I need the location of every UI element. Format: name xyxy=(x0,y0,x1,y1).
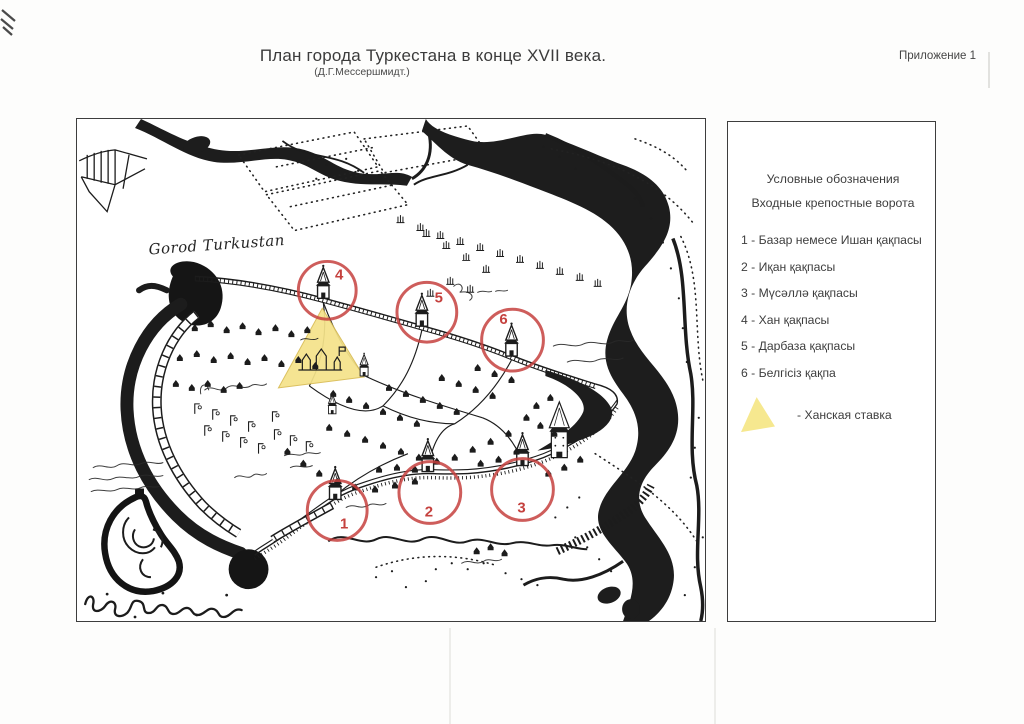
map-handwritten-label: Gorod Turkustan xyxy=(148,231,285,258)
scan-edge-line xyxy=(988,52,990,88)
gate-marker-3: 3 xyxy=(492,459,554,521)
svg-text:6: 6 xyxy=(499,311,507,328)
scan-fold-line xyxy=(449,628,451,724)
minaret-tower xyxy=(549,402,569,458)
historical-map: Gorod Turkustan xyxy=(77,119,705,621)
page-subtitle: (Д.Г.Мессершмидт.) xyxy=(314,66,409,78)
svg-text:3: 3 xyxy=(517,499,525,516)
legend-item-2: 2 - Иқан қақпасы xyxy=(741,258,925,278)
khan-hq-swatch xyxy=(741,397,775,432)
citadel-highlight xyxy=(278,308,364,388)
legend-subheading: Входные крепостные ворота xyxy=(741,196,925,210)
corner-sketch xyxy=(79,150,147,212)
marks-layer xyxy=(195,404,313,454)
river-northwest xyxy=(135,119,468,186)
svg-text:4: 4 xyxy=(335,266,344,283)
legend-item-4: 4 - Хан қақпасы xyxy=(741,311,925,331)
legend-item-5: 5 - Дарбаза қақпасы xyxy=(741,337,925,357)
scan-corner-mark xyxy=(0,8,18,38)
arabic-script xyxy=(85,592,241,619)
legend-panel: Условные обозначения Входные крепостные … xyxy=(727,121,936,622)
legend-item-1: 1 - Базар немесе Ишан қақпасы xyxy=(741,231,925,251)
scan-fold-line xyxy=(714,628,716,724)
legend-item-3: 3 - Мүсәллә қақпасы xyxy=(741,284,925,304)
khan-hq-row: - Ханская ставка xyxy=(741,397,925,432)
legend-items: 1 - Базар немесе Ишан қақпасы2 - Иқан қа… xyxy=(741,231,925,383)
svg-text:5: 5 xyxy=(435,289,443,306)
annex-label: Приложение 1 xyxy=(899,50,976,62)
khan-hq-label: - Ханская ставка xyxy=(797,408,892,422)
svg-text:1: 1 xyxy=(340,515,348,532)
trees-layer xyxy=(396,215,601,296)
scanned-page: { "page": { "title": "План города Туркес… xyxy=(0,0,1024,724)
legend-item-6: 6 - Белгісіз қақпа xyxy=(741,364,925,384)
legend-heading: Условные обозначения xyxy=(741,172,925,186)
map-frame: Gorod Turkustan xyxy=(76,118,706,622)
svg-text:2: 2 xyxy=(425,503,433,520)
page-title: План города Туркестана в конце XVII века… xyxy=(260,46,606,66)
